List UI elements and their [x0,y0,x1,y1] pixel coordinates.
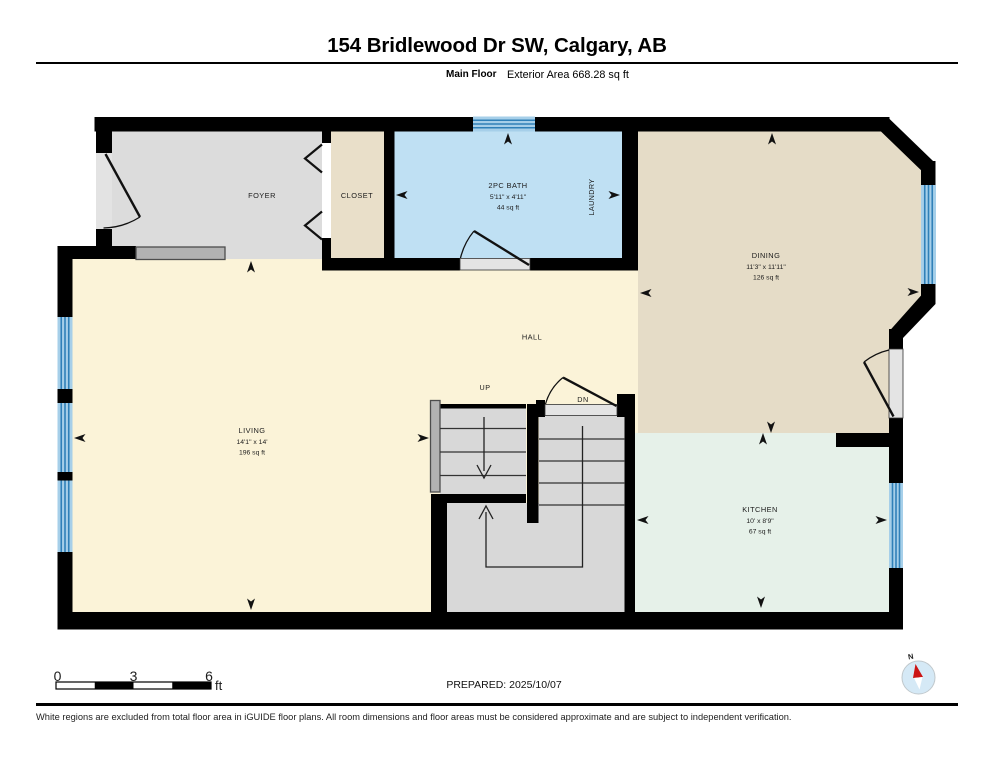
svg-text:2PC BATH: 2PC BATH [488,181,527,190]
svg-text:67 sq ft: 67 sq ft [749,529,771,536]
svg-text:UP: UP [480,383,491,392]
svg-text:CLOSET: CLOSET [341,191,373,200]
svg-text:ft: ft [215,678,223,693]
svg-text:FOYER: FOYER [248,191,276,200]
svg-text:10' x 8'9": 10' x 8'9" [746,518,774,525]
svg-text:196 sq ft: 196 sq ft [239,450,265,457]
svg-text:DINING: DINING [752,251,781,260]
svg-text:LAUNDRY: LAUNDRY [587,178,596,215]
svg-text:44 sq ft: 44 sq ft [497,205,519,212]
svg-text:5'11" x 4'11": 5'11" x 4'11" [490,194,527,201]
svg-text:N: N [907,652,914,662]
svg-text:DN: DN [577,395,588,404]
svg-text:LIVING: LIVING [239,426,266,435]
svg-text:126 sq ft: 126 sq ft [753,275,779,282]
svg-text:11'3" x 11'11": 11'3" x 11'11" [746,264,786,271]
svg-text:14'1" x 14': 14'1" x 14' [236,439,267,446]
svg-text:KITCHEN: KITCHEN [742,505,778,514]
svg-text:HALL: HALL [522,333,542,342]
